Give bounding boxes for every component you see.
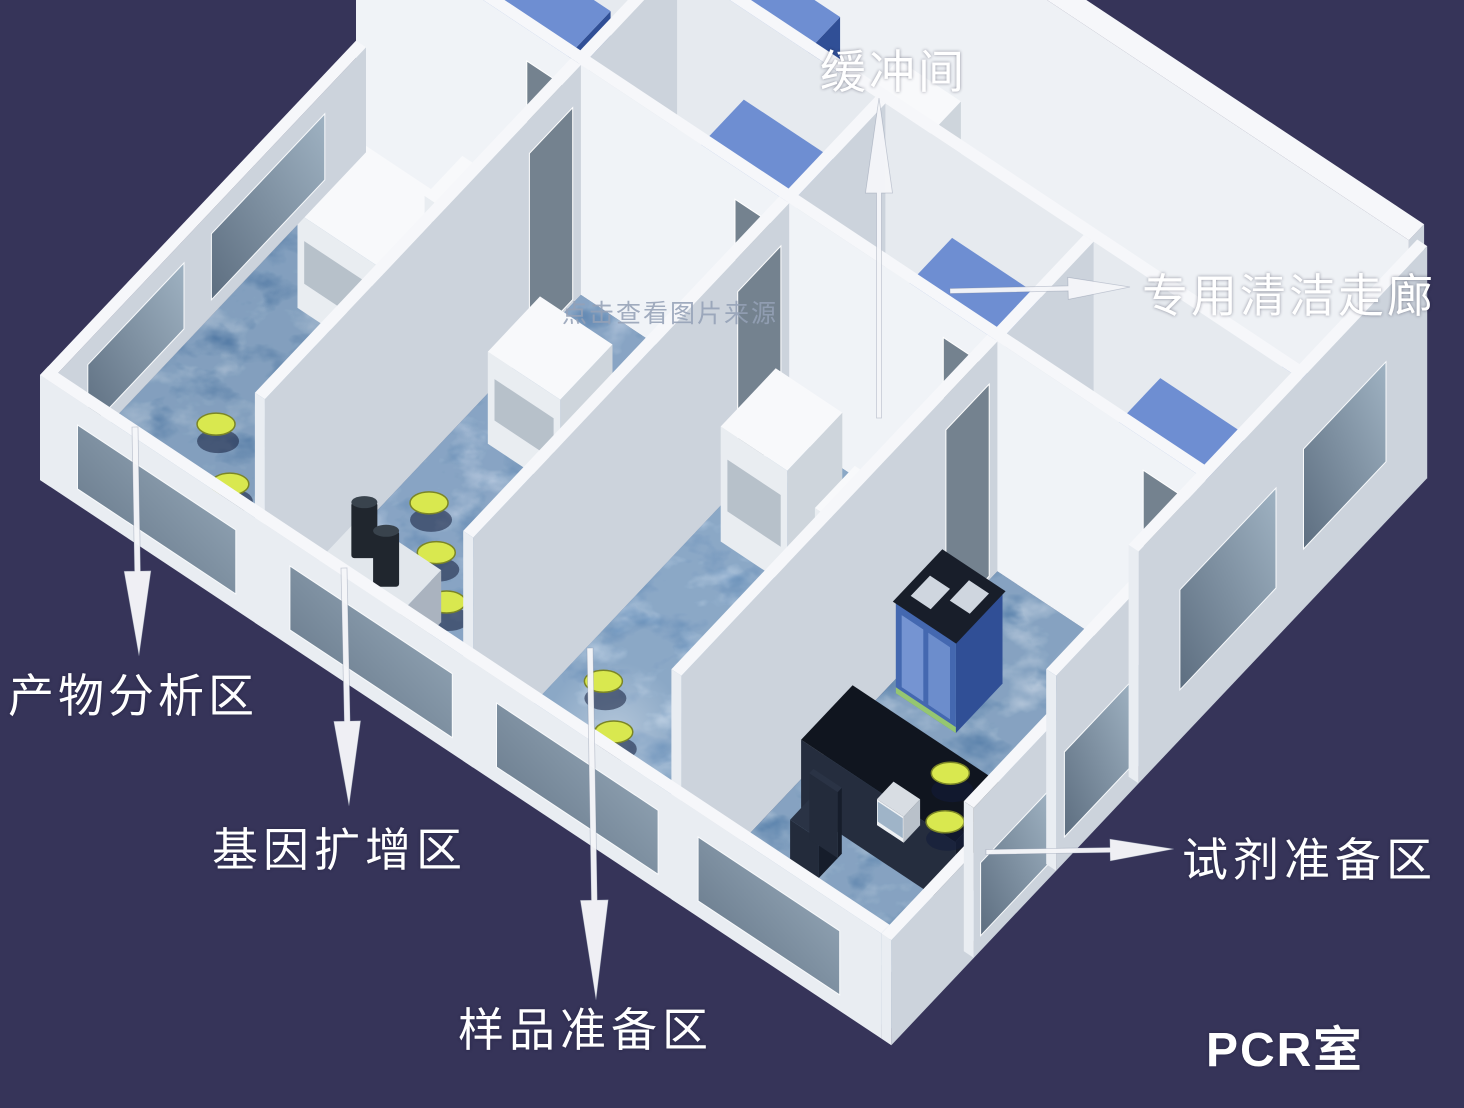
canister-top — [351, 496, 377, 508]
label-gene-amplification-area: 基因扩增区 — [212, 814, 467, 880]
label-pcr-room: PCR室 — [1206, 1010, 1363, 1080]
right-wall-step2-front — [964, 801, 974, 958]
stool — [410, 492, 448, 514]
label-buffer-room: 缓冲间 — [820, 36, 967, 102]
pcr-lab-diagram: 产物分析区 基因扩增区 样品准备区 试剂准备区 缓冲间 专用清洁走廊 PCR室 … — [0, 0, 1464, 1108]
label-clean-corridor: 专用清洁走廊 — [1142, 260, 1436, 326]
chair-back-side — [838, 788, 842, 858]
cabinet-door — [902, 615, 924, 701]
label-reagent-preparation-area: 试剂准备区 — [1182, 824, 1437, 890]
canister — [373, 531, 399, 587]
right-wall-step3-front — [1046, 669, 1056, 871]
stool — [197, 413, 235, 435]
canister-top — [373, 525, 399, 537]
right-wall-step1-front — [881, 934, 891, 1046]
stool — [931, 762, 969, 784]
lab-3d-scene — [0, 0, 1464, 1108]
right-wall-tall-front — [1129, 545, 1139, 784]
cabinet-door — [928, 633, 950, 719]
stool — [926, 811, 964, 833]
label-product-analysis-area: 产物分析区 — [8, 660, 258, 726]
label-sample-preparation-area: 样品准备区 — [458, 994, 713, 1060]
watermark-text: 点击查看图片来源 — [562, 294, 778, 330]
